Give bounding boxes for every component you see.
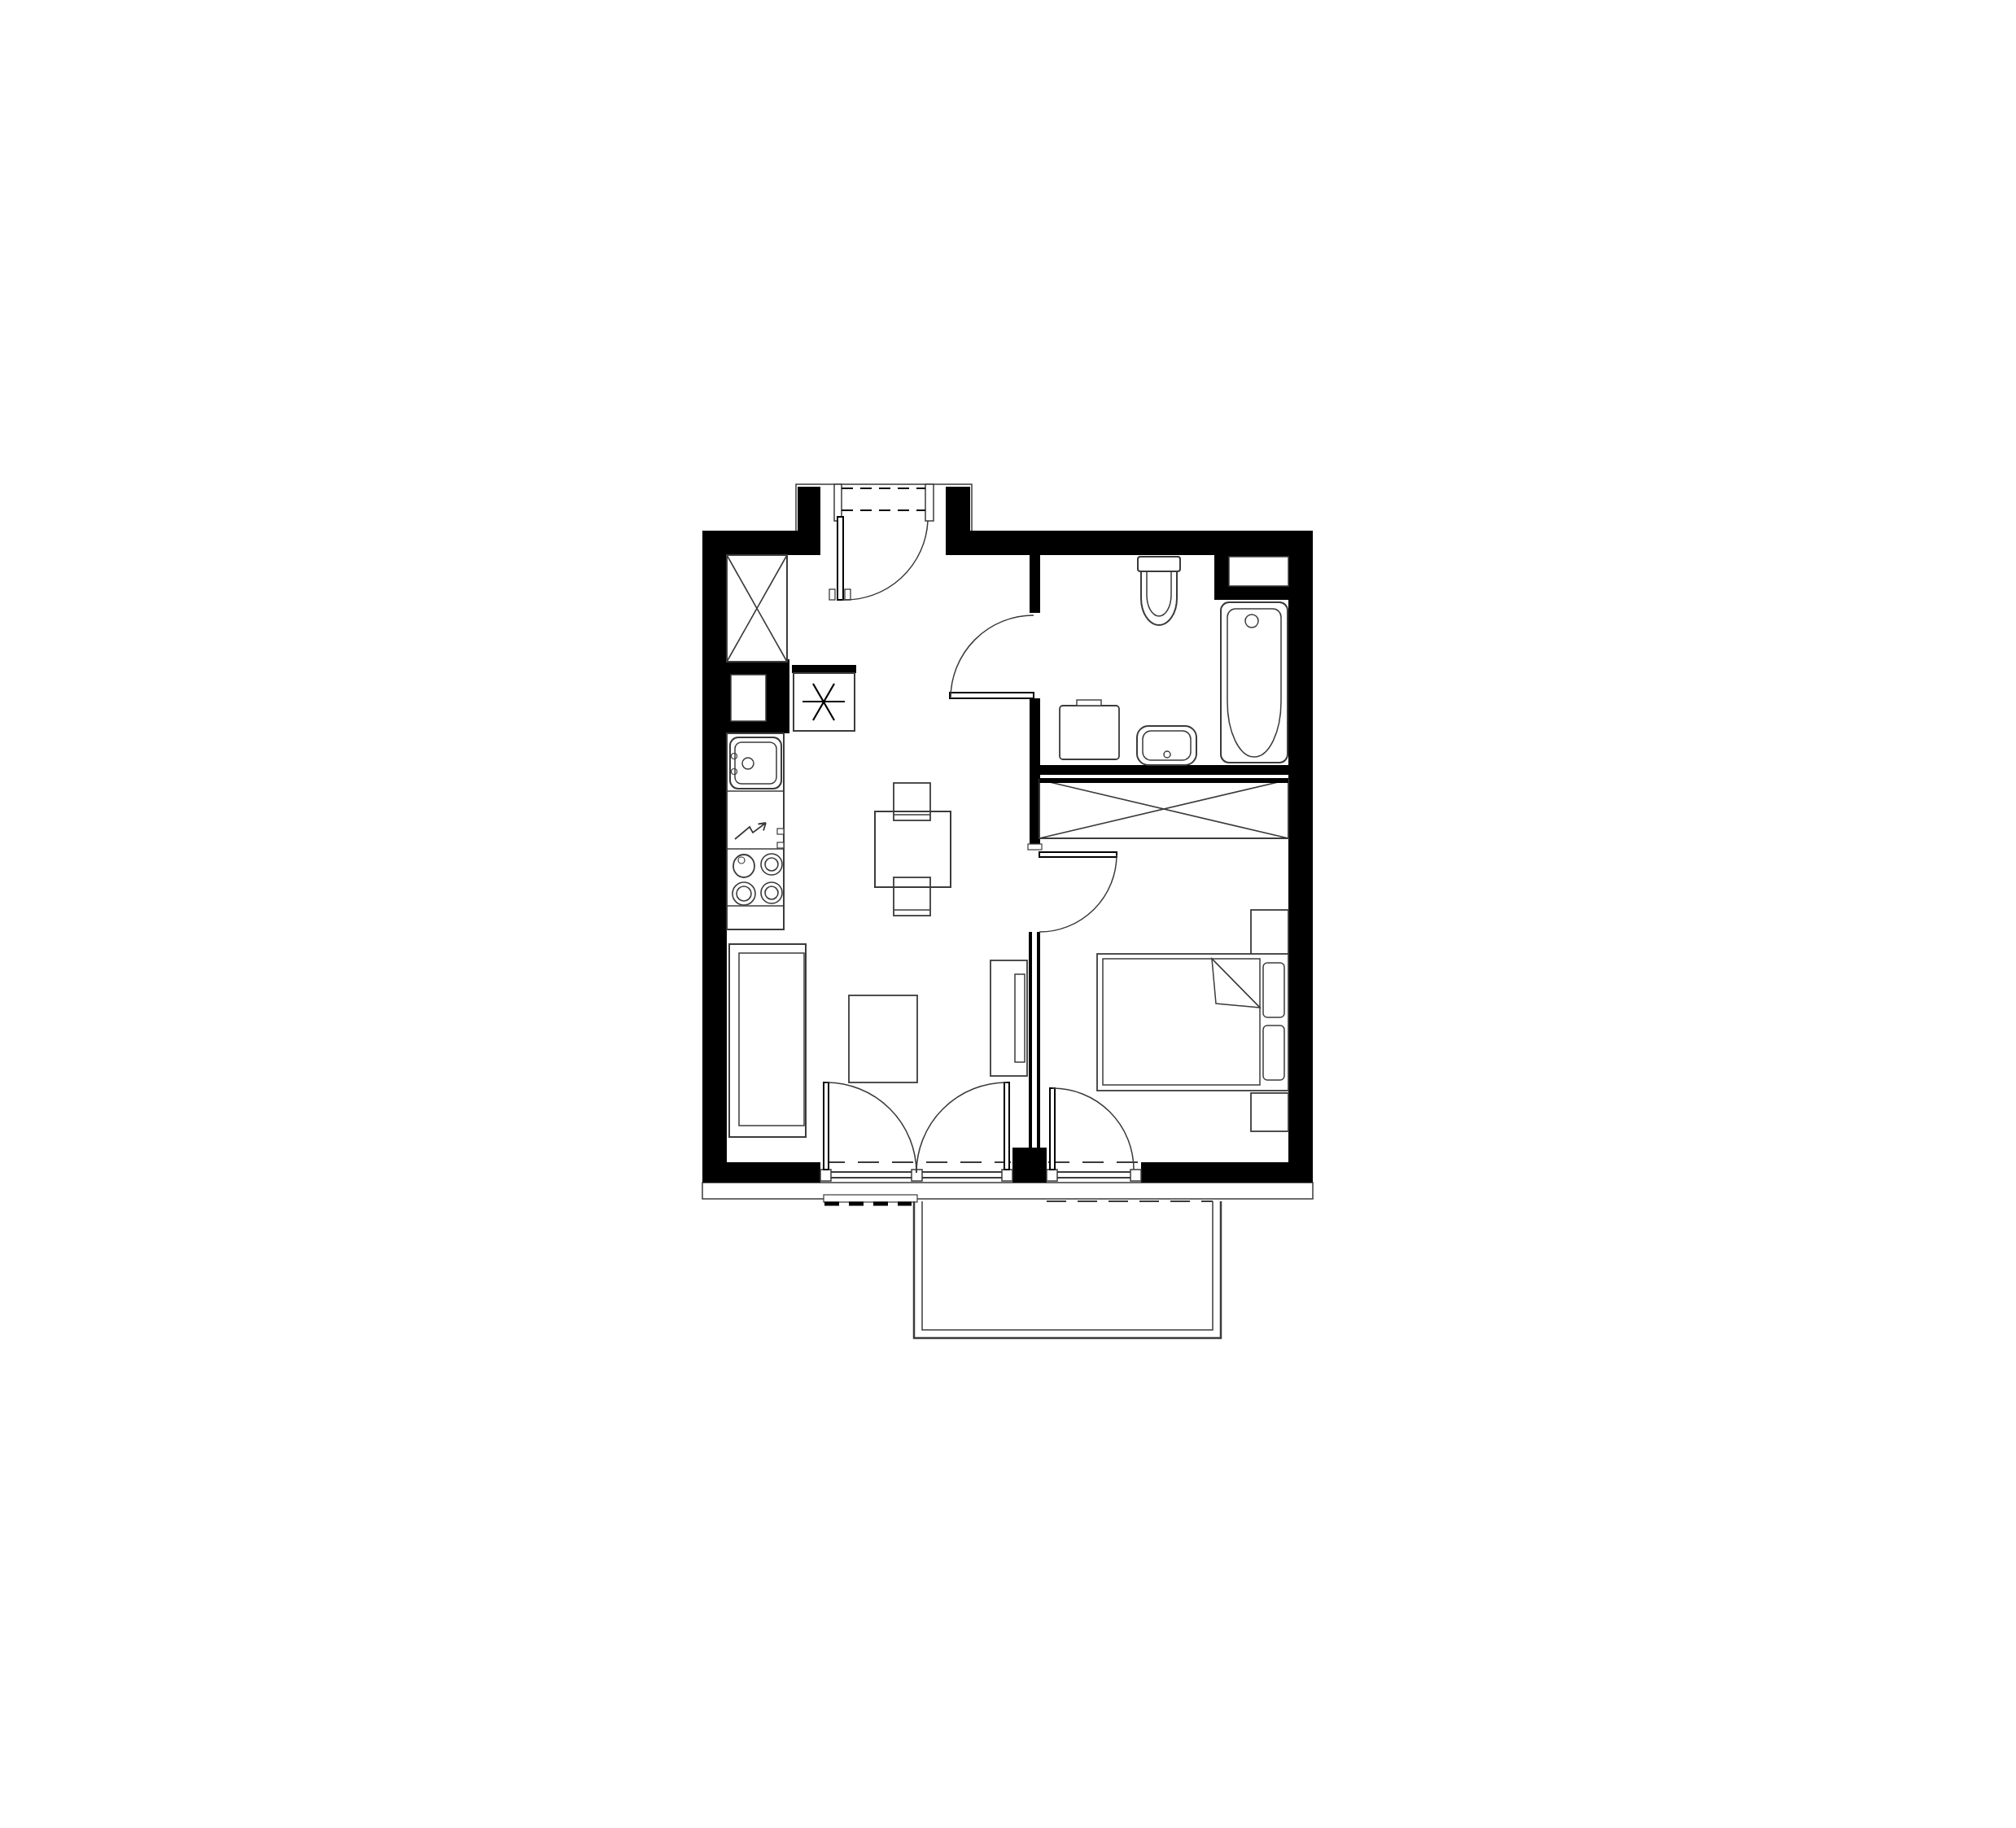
bedroom-partition-line-a — [1029, 932, 1032, 1148]
dishwasher-handle — [777, 829, 784, 834]
balcony-door-left-swing — [826, 1082, 916, 1173]
bath-bottom-wall — [1040, 765, 1290, 775]
bedroom-door-swing — [1039, 855, 1117, 932]
door-jamb-cap — [1028, 844, 1042, 850]
bath-partition-upper — [1030, 555, 1040, 613]
balcony-door-left-leaf — [824, 1082, 829, 1170]
bathroom-door-leaf — [950, 693, 1034, 698]
bedroom-balcony-door-swing — [1052, 1088, 1134, 1170]
entrance-door-post — [925, 484, 934, 521]
entrance-door-handle — [845, 589, 851, 600]
bedroom-door-leaf — [1039, 852, 1117, 857]
balcony-door-right-leaf — [1004, 1082, 1009, 1170]
sill-band — [702, 1183, 1313, 1199]
corner-niche-inner — [1229, 557, 1288, 586]
wall-bottom-left — [702, 1162, 820, 1183]
dining-table — [875, 811, 951, 887]
entrance-recess-outline — [796, 484, 972, 555]
wall-top-right — [970, 531, 1313, 555]
dishwasher-handle — [777, 842, 784, 848]
washing-machine — [1060, 706, 1119, 759]
floor-plan-page — [0, 0, 2016, 1828]
sofa — [729, 944, 806, 1137]
vent-counter-bar — [792, 665, 856, 673]
entrance-door-handle — [829, 589, 835, 600]
floor-plan-svg — [0, 0, 2016, 1828]
bedroom-closet-top-bar — [1039, 778, 1288, 783]
vestibule-column-right — [946, 487, 970, 555]
balcony-outer-wall — [914, 1201, 1221, 1338]
bed-pillow — [1263, 1026, 1284, 1080]
shaft-inner — [731, 675, 766, 721]
vestibule-column-left — [798, 487, 820, 555]
bathroom-door-swing — [951, 615, 1034, 698]
wall-bottom-right — [1141, 1162, 1313, 1183]
tv-console — [991, 960, 1027, 1076]
entrance-door-post — [834, 484, 842, 521]
wall-right — [1288, 531, 1313, 1183]
window-mullion — [820, 1170, 831, 1181]
nightstand — [1251, 910, 1288, 955]
bathtub — [1221, 602, 1288, 763]
toilet-tank — [1138, 557, 1180, 571]
bedroom-partition-line-b — [1037, 932, 1040, 1148]
nightstand — [1251, 1093, 1288, 1131]
washing-machine-lid — [1077, 700, 1101, 706]
bedroom-balcony-door-leaf — [1050, 1088, 1055, 1170]
wall-left — [702, 531, 727, 1183]
window-mullion — [1130, 1170, 1141, 1181]
armchair — [849, 995, 917, 1082]
window-pier — [1012, 1148, 1047, 1183]
kitchen-sink — [730, 737, 781, 789]
balcony-inner-wall — [922, 1201, 1213, 1330]
balcony-door-right-swing — [916, 1082, 1007, 1173]
entrance-door-leaf — [837, 517, 843, 600]
window-mullion — [1002, 1170, 1012, 1181]
bed-pillow — [1263, 963, 1284, 1017]
window-mullion — [1047, 1170, 1057, 1181]
exterior-step — [824, 1195, 917, 1202]
